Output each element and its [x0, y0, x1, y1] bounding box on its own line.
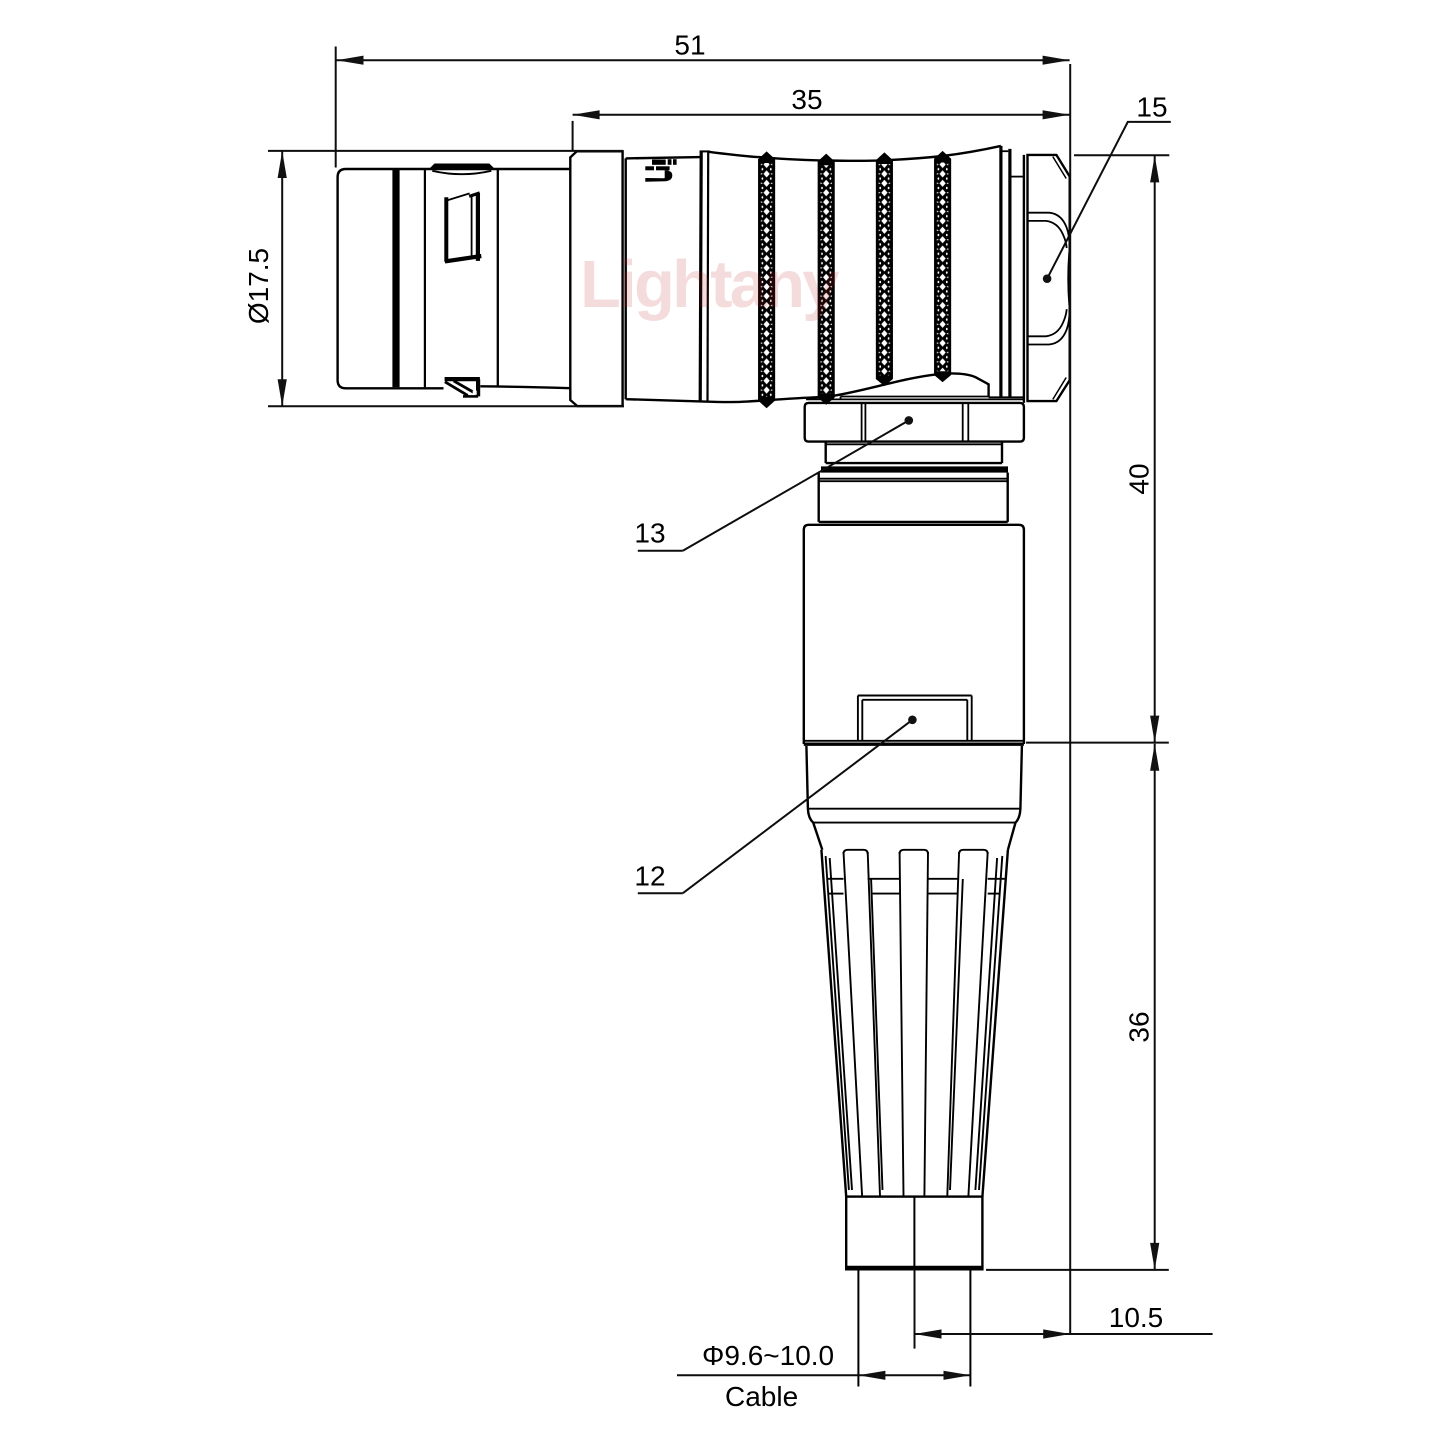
svg-text:15: 15 [1136, 92, 1167, 123]
svg-text:13: 13 [634, 518, 665, 549]
svg-text:36: 36 [1124, 1011, 1155, 1042]
svg-text:10.5: 10.5 [1109, 1302, 1164, 1333]
svg-text:Φ9.6~10.0: Φ9.6~10.0 [702, 1340, 834, 1371]
svg-text:Cable: Cable [725, 1381, 798, 1412]
svg-text:12: 12 [634, 861, 665, 892]
svg-text:35: 35 [791, 84, 822, 115]
svg-text:51: 51 [674, 29, 705, 60]
svg-text:40: 40 [1124, 463, 1155, 494]
svg-text:Ø17.5: Ø17.5 [243, 248, 274, 324]
